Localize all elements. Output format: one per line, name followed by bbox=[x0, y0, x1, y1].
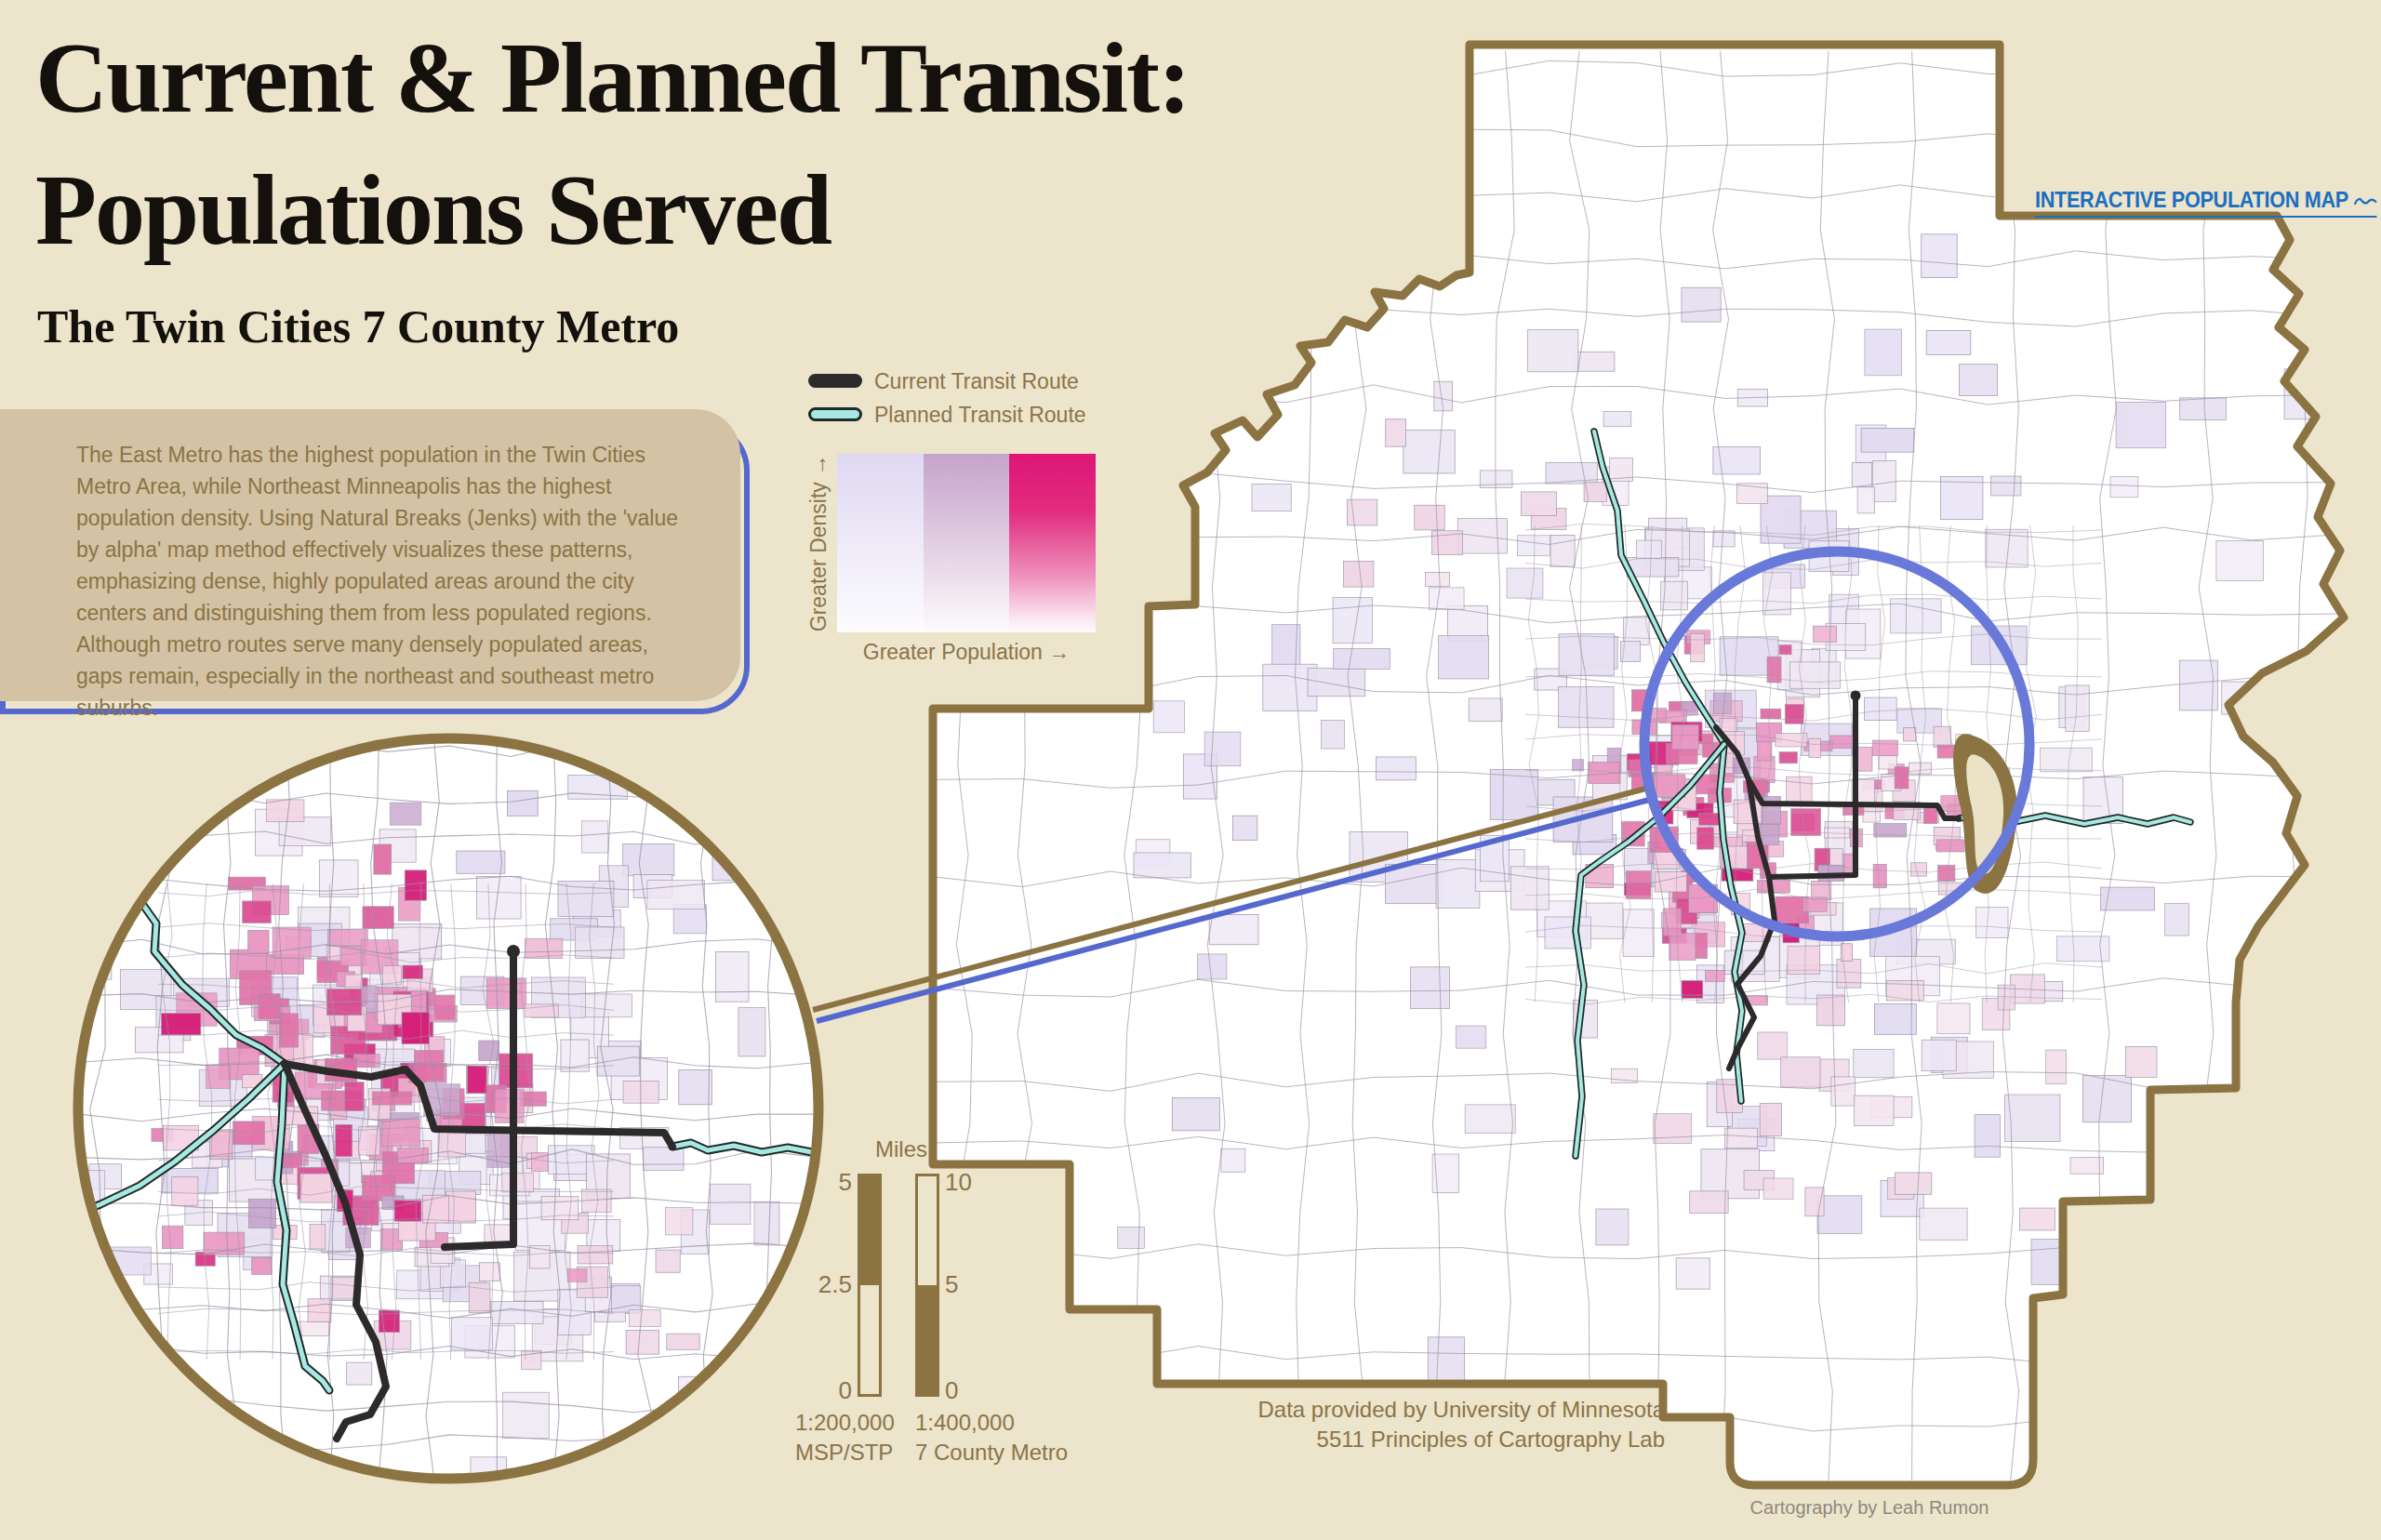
inset-map-group bbox=[0, 676, 849, 1514]
scale-bar-msp bbox=[858, 1174, 882, 1397]
scale-metro-top: 10 bbox=[945, 1168, 972, 1197]
data-attribution: Data provided by University of Minnesota… bbox=[1246, 1395, 1665, 1454]
scale-metro-area: 7 County Metro bbox=[915, 1440, 1068, 1466]
poster: Current & Planned Transit: Populations S… bbox=[0, 0, 2381, 1540]
density-axis-label: Greater Density → bbox=[806, 455, 831, 631]
planned-route-label: Planned Transit Route bbox=[874, 403, 1086, 428]
scale-title: Miles bbox=[875, 1136, 927, 1162]
legend-gradient-high bbox=[1009, 454, 1096, 632]
description-panel: The East Metro has the highest populatio… bbox=[0, 409, 740, 701]
scale-bar-msp-empty bbox=[858, 1282, 882, 1397]
scale-bar-metro bbox=[915, 1174, 939, 1397]
interactive-map-link-label: INTERACTIVE POPULATION MAP bbox=[2035, 188, 2348, 213]
scale-bar-metro-empty bbox=[915, 1174, 939, 1288]
scale-msp-bottom: 0 bbox=[796, 1376, 852, 1405]
scale-metro-mid: 5 bbox=[945, 1270, 958, 1299]
attribution-line2: 5511 Principles of Cartography Lab bbox=[1246, 1425, 1665, 1454]
scale-bar-metro-filled bbox=[915, 1288, 939, 1397]
page-title-line2: Populations Served bbox=[35, 160, 831, 260]
current-route-label: Current Transit Route bbox=[874, 369, 1079, 394]
current-route-swatch bbox=[808, 374, 862, 388]
scale-metro-bottom: 0 bbox=[945, 1376, 958, 1405]
planned-route-swatch bbox=[808, 407, 862, 421]
scale-msp-ratio: 1:200,000 bbox=[795, 1410, 895, 1436]
interactive-map-link[interactable]: INTERACTIVE POPULATION MAP bbox=[2035, 188, 2376, 218]
value-by-alpha-legend bbox=[837, 454, 1096, 632]
scale-metro-ratio: 1:400,000 bbox=[915, 1410, 1015, 1436]
scale-bar-msp-filled bbox=[858, 1174, 882, 1282]
wave-icon bbox=[2354, 194, 2376, 207]
legend-gradient-low bbox=[837, 454, 924, 632]
scale-msp-mid: 2.5 bbox=[796, 1270, 852, 1299]
page-title-line1: Current & Planned Transit: bbox=[35, 28, 1190, 128]
page-subtitle: The Twin Cities 7 County Metro bbox=[37, 299, 679, 353]
scale-msp-top: 5 bbox=[796, 1168, 852, 1197]
attribution-line1: Data provided by University of Minnesota bbox=[1246, 1395, 1665, 1425]
scale-msp-area: MSP/STP bbox=[795, 1440, 893, 1466]
legend-gradient-mid bbox=[924, 454, 1010, 632]
cartographer-credit: Cartography by Leah Rumon bbox=[1702, 1497, 2037, 1519]
main-map-group bbox=[933, 45, 2376, 1485]
population-axis-label: Greater Population → bbox=[863, 640, 1070, 665]
description-text: The East Metro has the highest populatio… bbox=[76, 439, 679, 724]
